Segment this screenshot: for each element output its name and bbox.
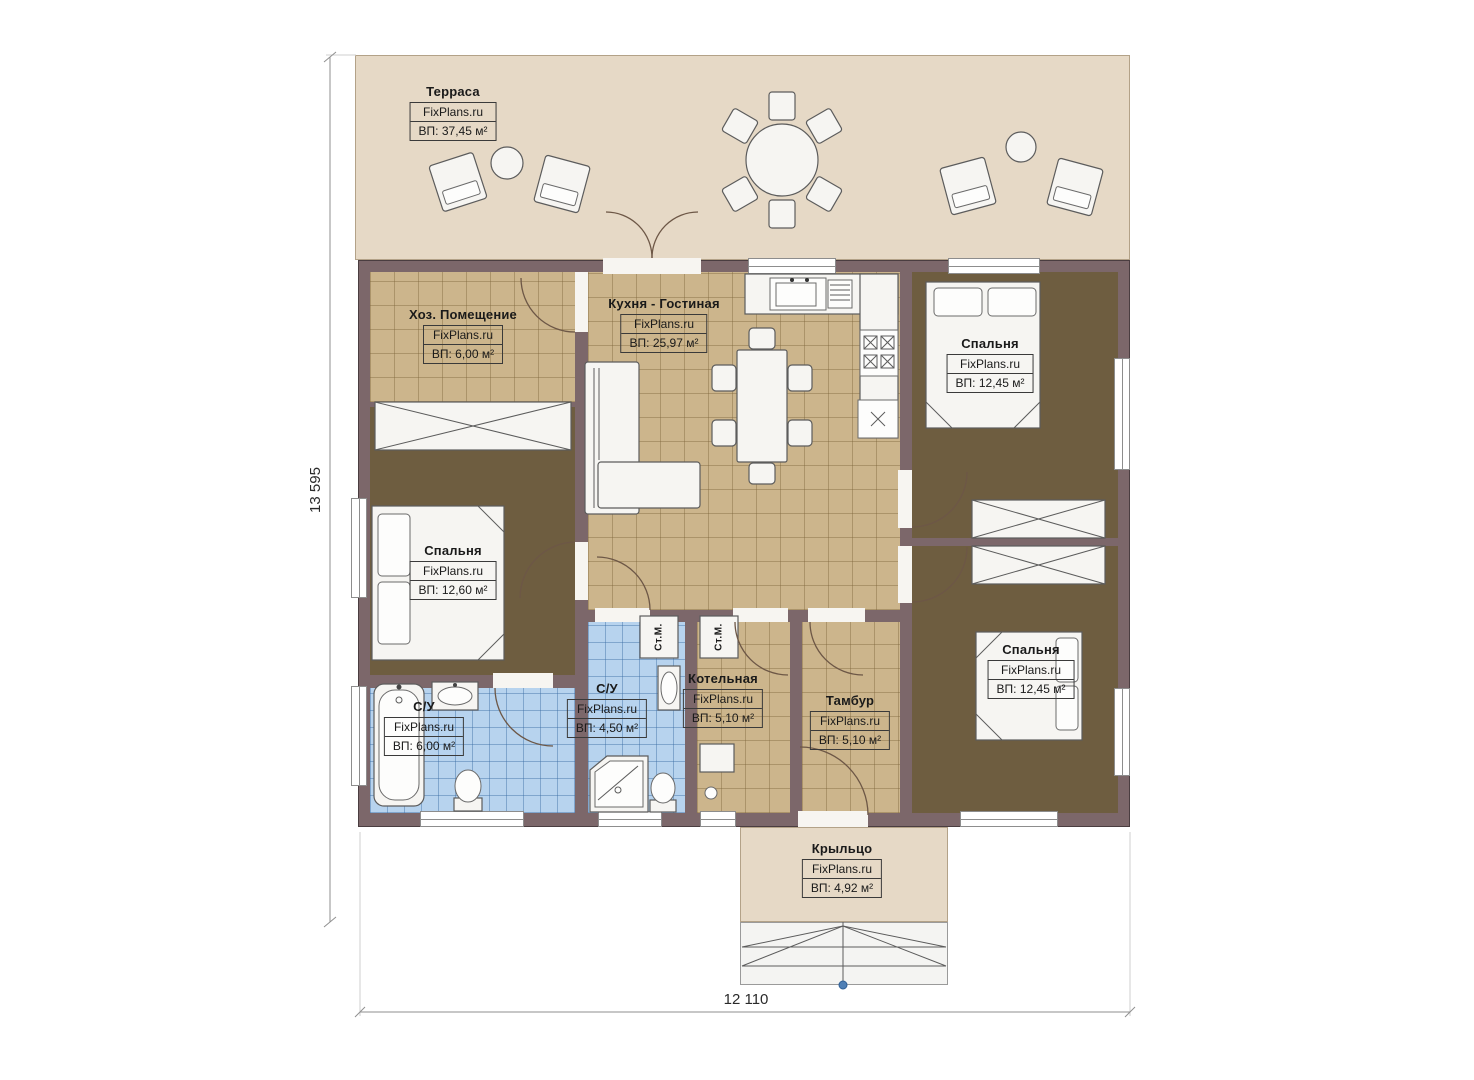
window <box>1114 688 1130 776</box>
washer-label: Ст.М. <box>654 623 665 651</box>
room-name: Хоз. Помещение <box>409 307 517 322</box>
room-area: ВП: 5,10 м² <box>684 709 762 727</box>
room-area: ВП: 5,10 м² <box>811 731 889 749</box>
room-name: С/У <box>384 699 464 714</box>
room-brand: FixPlans.ru <box>411 562 496 581</box>
door-opening <box>595 608 650 622</box>
room-brand: FixPlans.ru <box>411 103 496 122</box>
window <box>351 498 367 598</box>
room-brand: FixPlans.ru <box>568 700 646 719</box>
floor-bedroom-2 <box>370 407 575 675</box>
room-area: ВП: 12,60 м² <box>411 581 496 599</box>
door-opening <box>733 608 788 622</box>
room-name: Котельная <box>683 671 763 686</box>
room-name: Кухня - Гостиная <box>608 296 720 311</box>
door-opening <box>898 470 912 528</box>
window <box>948 258 1040 274</box>
room-brand: FixPlans.ru <box>684 690 762 709</box>
room-label-kitchen: Кухня - Гостиная FixPlans.ru ВП: 25,97 м… <box>608 296 720 353</box>
window <box>1114 358 1130 470</box>
door-opening <box>603 258 701 274</box>
door-opening <box>493 673 553 688</box>
room-area: ВП: 4,92 м² <box>803 879 881 897</box>
room-brand: FixPlans.ru <box>424 326 502 345</box>
room-area: ВП: 6,00 м² <box>424 345 502 363</box>
room-area: ВП: 25,97 м² <box>622 334 707 352</box>
room-label-bedroom-1: Спальня FixPlans.ru ВП: 12,45 м² <box>947 336 1034 393</box>
room-name: Терраса <box>410 84 497 99</box>
porch-steps <box>740 922 948 985</box>
floor-plan: 13 595 12 110 Терраса FixPlans.ru ВП: 37… <box>0 0 1474 1080</box>
room-label-porch: Крыльцо FixPlans.ru ВП: 4,92 м² <box>802 841 882 898</box>
window <box>748 258 836 274</box>
window <box>420 811 524 827</box>
door-opening <box>808 608 865 622</box>
room-name: Спальня <box>988 642 1075 657</box>
dimension-height: 13 595 <box>307 467 324 513</box>
room-name: Крыльцо <box>802 841 882 856</box>
room-brand: FixPlans.ru <box>989 661 1074 680</box>
room-label-tambour: Тамбур FixPlans.ru ВП: 5,10 м² <box>810 693 890 750</box>
room-brand: FixPlans.ru <box>948 355 1033 374</box>
room-label-bedroom-2: Спальня FixPlans.ru ВП: 12,60 м² <box>410 543 497 600</box>
window <box>351 686 367 786</box>
room-area: ВП: 37,45 м² <box>411 122 496 140</box>
room-area: ВП: 4,50 м² <box>568 719 646 737</box>
floor-bedroom-1 <box>912 272 1118 538</box>
room-name: Спальня <box>947 336 1034 351</box>
room-label-bedroom-3: Спальня FixPlans.ru ВП: 12,45 м² <box>988 642 1075 699</box>
room-name: Спальня <box>410 543 497 558</box>
room-label-terrace: Терраса FixPlans.ru ВП: 37,45 м² <box>410 84 497 141</box>
door-opening <box>575 542 588 600</box>
door-opening <box>575 272 588 332</box>
window <box>700 811 736 827</box>
window <box>598 811 662 827</box>
room-brand: FixPlans.ru <box>803 860 881 879</box>
door-opening <box>898 546 912 603</box>
room-label-su-2: С/У FixPlans.ru ВП: 4,50 м² <box>567 681 647 738</box>
room-name: Тамбур <box>810 693 890 708</box>
window <box>960 811 1058 827</box>
washer-label: Ст.М. <box>714 623 725 651</box>
room-brand: FixPlans.ru <box>622 315 707 334</box>
room-label-su-1: С/У FixPlans.ru ВП: 6,00 м² <box>384 699 464 756</box>
room-brand: FixPlans.ru <box>811 712 889 731</box>
door-opening <box>798 811 868 827</box>
room-brand: FixPlans.ru <box>385 718 463 737</box>
room-label-utility: Хоз. Помещение FixPlans.ru ВП: 6,00 м² <box>409 307 517 364</box>
room-area: ВП: 12,45 м² <box>989 680 1074 698</box>
room-name: С/У <box>567 681 647 696</box>
dimension-width: 12 110 <box>724 991 769 1008</box>
room-label-boiler: Котельная FixPlans.ru ВП: 5,10 м² <box>683 671 763 728</box>
room-area: ВП: 12,45 м² <box>948 374 1033 392</box>
room-area: ВП: 6,00 м² <box>385 737 463 755</box>
